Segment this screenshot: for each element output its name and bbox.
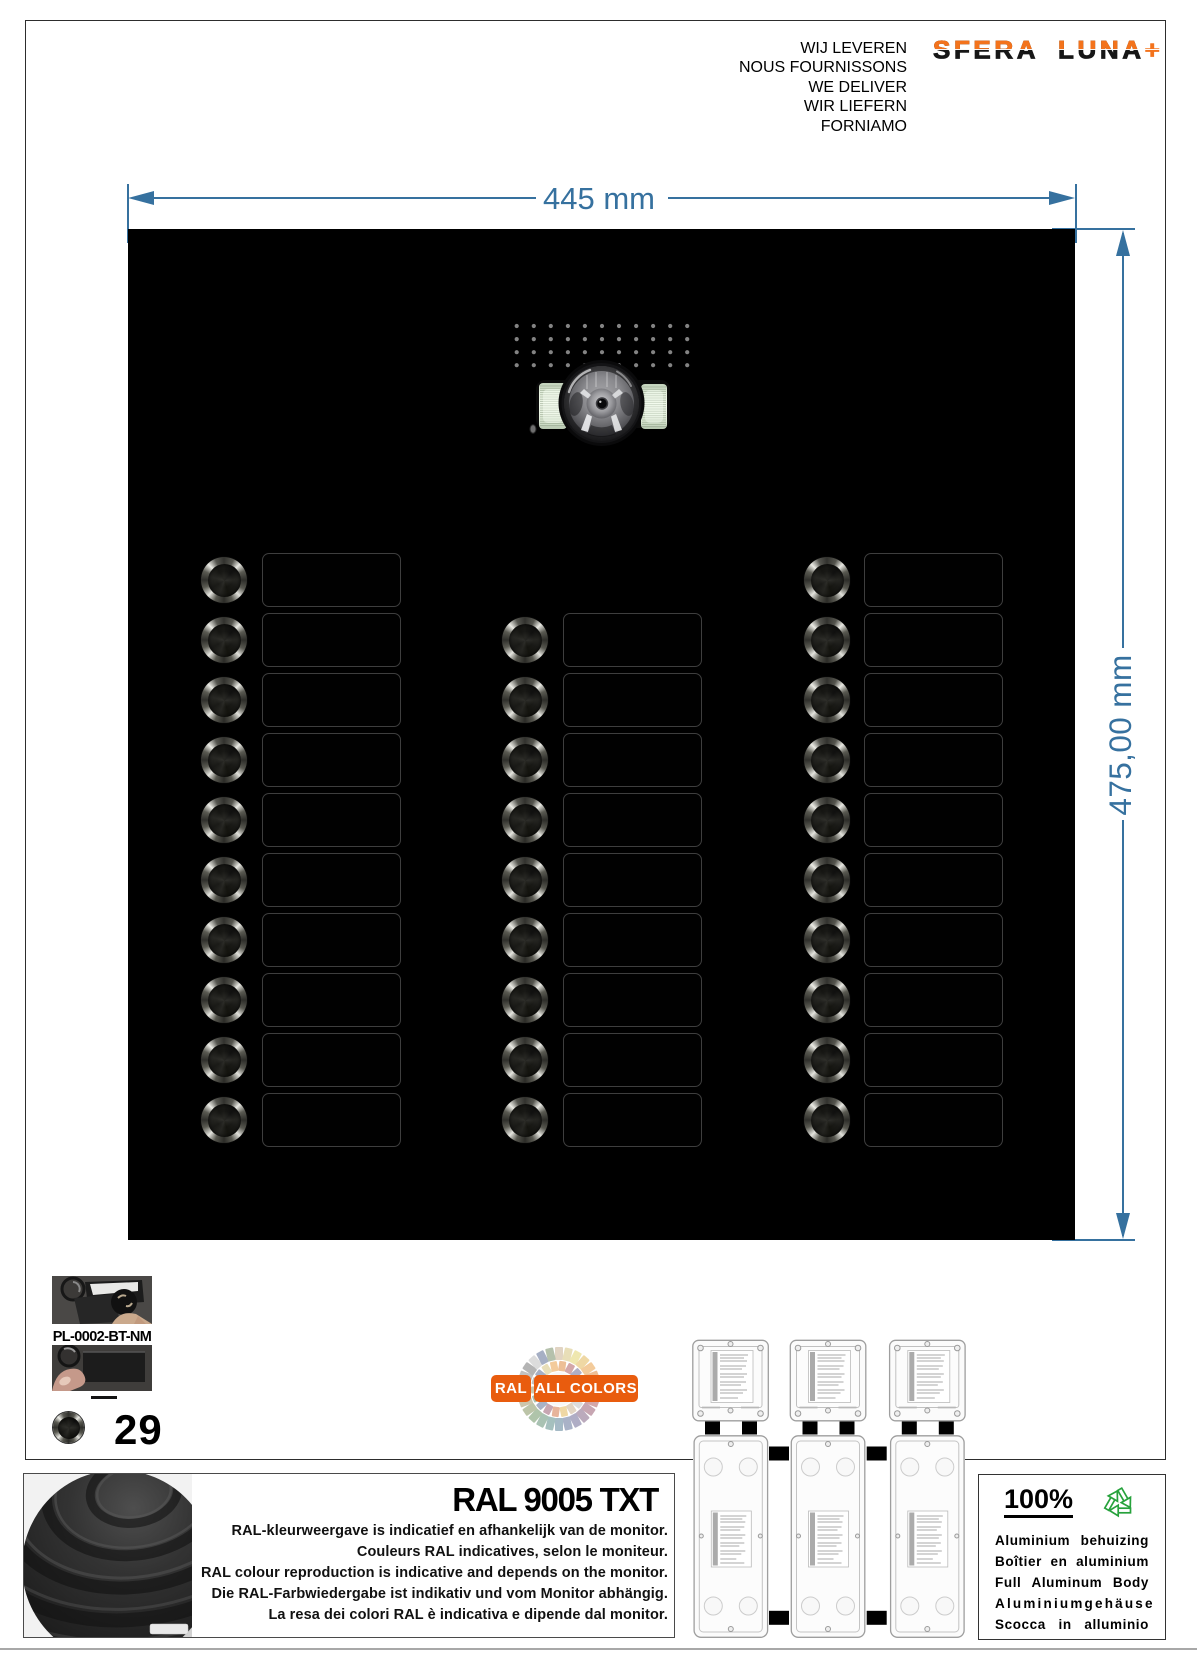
svg-text:475,00 mm: 475,00 mm <box>1102 654 1138 815</box>
svg-text:445 mm: 445 mm <box>543 181 655 216</box>
